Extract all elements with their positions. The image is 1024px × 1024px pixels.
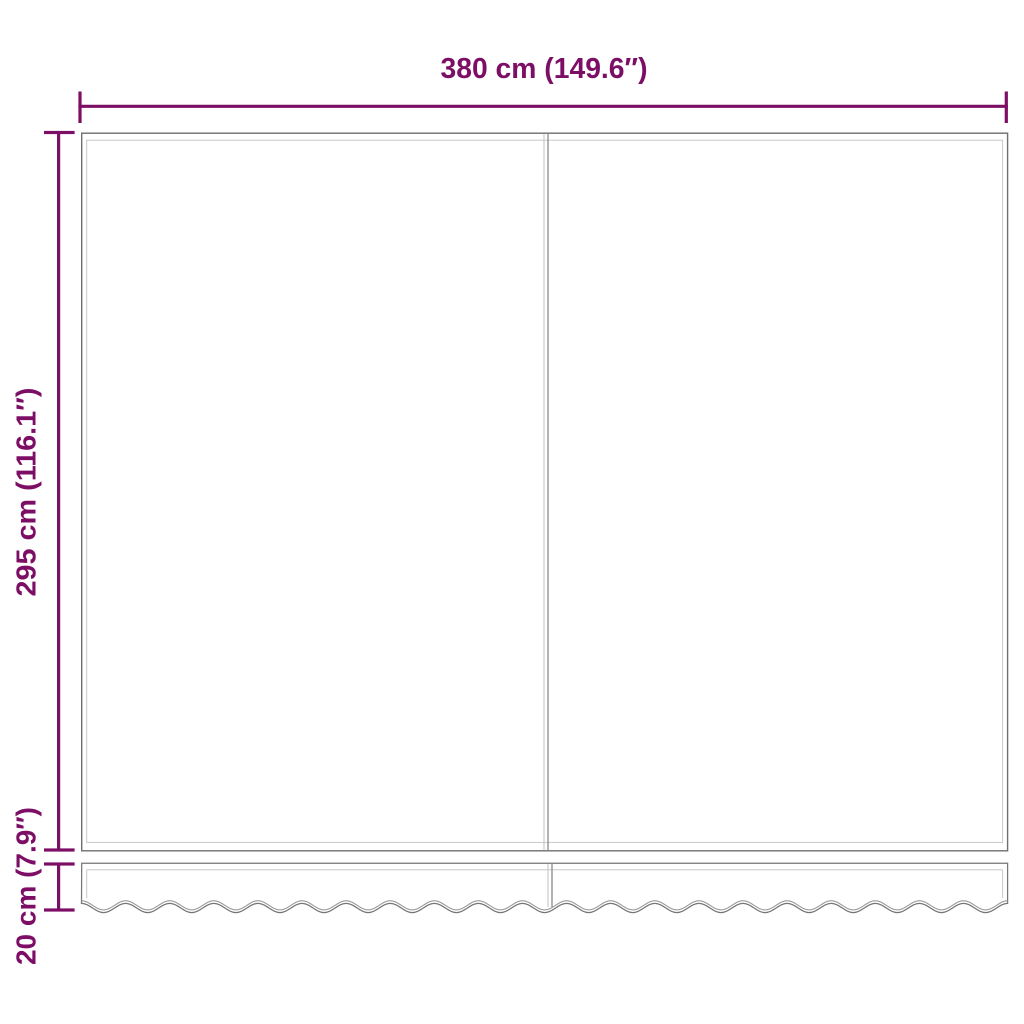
- svg-text:295 cm (116.1″): 295 cm (116.1″): [11, 388, 42, 597]
- svg-text:20 cm (7.9″): 20 cm (7.9″): [11, 807, 42, 965]
- svg-text:380 cm (149.6″): 380 cm (149.6″): [441, 53, 648, 85]
